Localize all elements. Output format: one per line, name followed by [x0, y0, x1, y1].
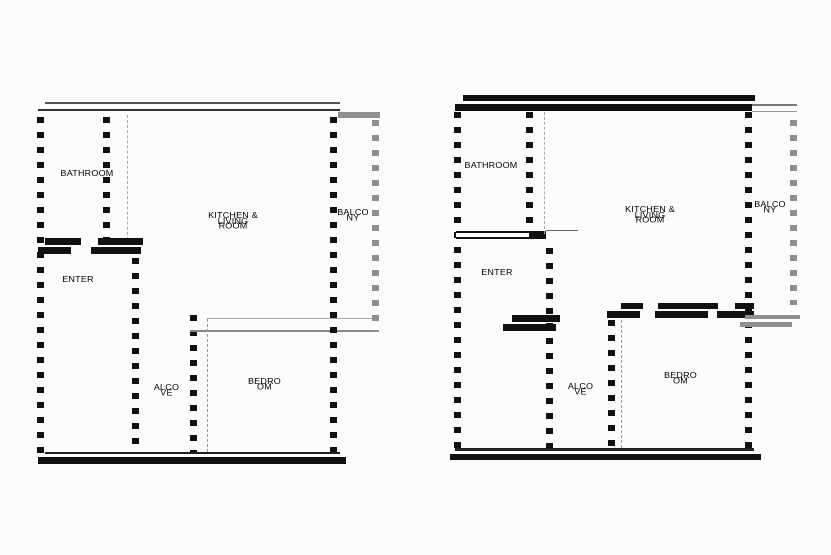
wall-bathroom-door-a [45, 238, 81, 245]
wall-enter-right [546, 248, 553, 448]
balcony-top-line [752, 104, 797, 106]
wall-hall-door-b [503, 324, 556, 331]
wall-bottom-thick [450, 454, 761, 460]
bedroom-top-line [207, 318, 373, 319]
wall-bottom-thin [45, 452, 340, 454]
wall-entry-door-b [91, 247, 141, 254]
wall-exterior-right [330, 117, 337, 453]
wall-hall-door-a [512, 315, 560, 322]
kitchen-boundary-line [544, 112, 545, 234]
wall-bottom-thick [38, 457, 346, 464]
wall-top-line [38, 109, 340, 111]
wall-top-thick-a [463, 95, 755, 101]
window-gap [708, 311, 717, 318]
wall-bathroom-right [103, 117, 110, 239]
wall-bedroom-top-b [607, 311, 754, 318]
balcony-bottom-wall-b [740, 322, 792, 327]
window-gap [718, 303, 735, 309]
balcony-bottom-wall-a [745, 315, 800, 319]
kitchen-boundary-line [127, 115, 128, 250]
room-label-alcove: ALCOVE [152, 385, 181, 395]
room-label-alcove: ALCOVE [566, 384, 595, 394]
room-label-kitchen-living: KITCHEN & LIVING ROOM [622, 207, 678, 223]
balcony-outer-wall [372, 120, 379, 332]
room-label-kitchen-living: KITCHEN & LIVING ROOM [205, 213, 261, 229]
wall-exterior-right [745, 112, 752, 448]
room-label-bathroom: BATHROOM [459, 163, 523, 168]
room-label-balcony: BALCONY [754, 202, 786, 212]
window-gap [643, 303, 658, 309]
balcony-top-wall [338, 112, 380, 118]
floor-plan-left: BATHROOM KITCHEN & LIVING ROOM BALCONY E… [35, 95, 380, 470]
wall-bedroom-top-a [621, 303, 754, 309]
bedroom-top-line-2 [190, 330, 377, 332]
room-label-enter: ENTER [49, 277, 107, 282]
wall-bathroom-door-b [98, 238, 143, 245]
wall-bottom-thin [455, 448, 754, 451]
room-label-bedroom: BEDROOM [247, 379, 282, 389]
wall-alcove-right [190, 315, 197, 453]
room-label-balcony: BALCONY [337, 210, 369, 220]
wall-enter-right [132, 258, 139, 453]
bedroom-left-line [621, 320, 622, 448]
wall-top-thin-line [45, 102, 340, 104]
room-label-bathroom: BATHROOM [55, 171, 119, 176]
bedroom-left-line [207, 319, 208, 452]
wall-top-thick-b [455, 104, 752, 111]
door-swing-line [546, 230, 578, 231]
balcony-outer-wall [790, 120, 797, 305]
room-label-bedroom: BEDROOM [663, 373, 698, 383]
wall-bathroom-bottom [456, 231, 529, 239]
floor-plans-canvas: BATHROOM KITCHEN & LIVING ROOM BALCONY E… [0, 0, 831, 555]
wall-entry-door-a [38, 247, 71, 254]
wall-bathroom-right [526, 112, 533, 232]
room-label-enter: ENTER [468, 270, 526, 275]
wall-exterior-left [37, 117, 44, 453]
floor-plan-right: BATHROOM KITCHEN & LIVING ROOM BALCONY E… [450, 90, 800, 465]
wall-bedroom-left [608, 320, 615, 448]
balcony-top-line-2 [752, 111, 797, 112]
window-gap [640, 311, 655, 318]
